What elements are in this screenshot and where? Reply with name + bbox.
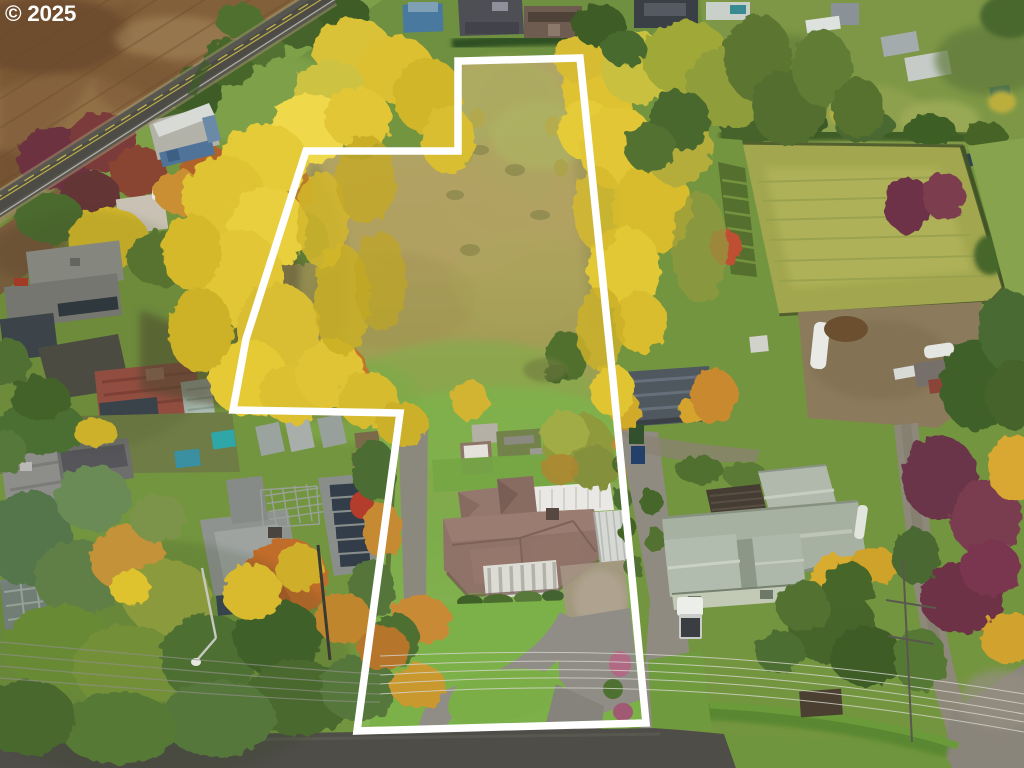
svg-text:© 2025: © 2025 [5, 1, 76, 26]
